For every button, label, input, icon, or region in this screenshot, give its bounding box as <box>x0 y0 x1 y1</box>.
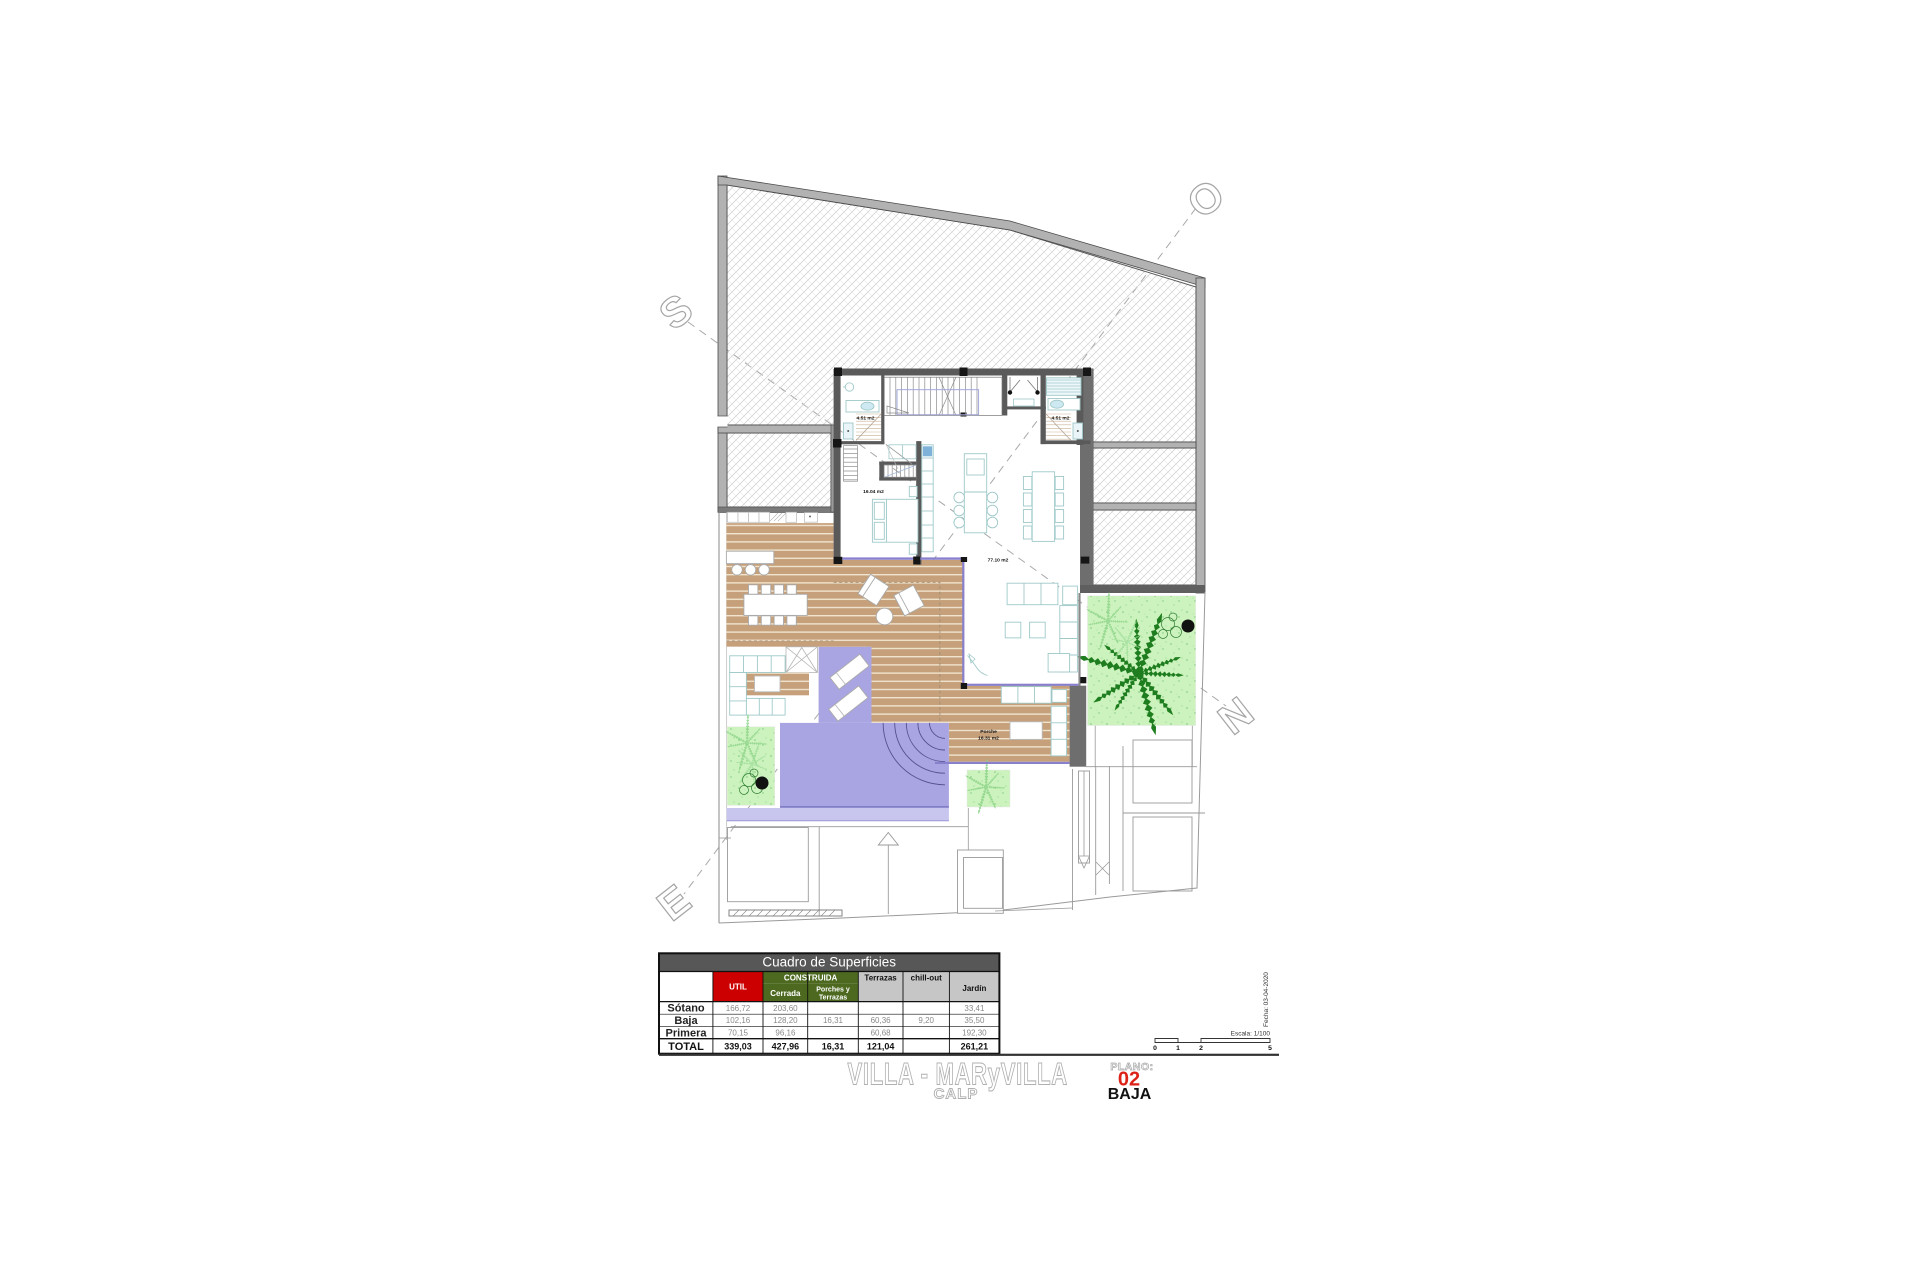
svg-text:chill-out: chill-out <box>911 974 942 983</box>
svg-text:Escala: 1/100: Escala: 1/100 <box>1231 1031 1271 1038</box>
svg-text:261,21: 261,21 <box>961 1042 989 1052</box>
svg-text:4.51 m2: 4.51 m2 <box>1052 416 1070 422</box>
svg-text:4.51 m2: 4.51 m2 <box>857 416 875 422</box>
svg-text:Porche: Porche <box>980 729 997 735</box>
svg-text:33,41: 33,41 <box>964 1004 985 1013</box>
svg-text:Fecha: 03-04-2020: Fecha: 03-04-2020 <box>1263 972 1270 1027</box>
svg-text:CALP: CALP <box>934 1086 979 1103</box>
svg-text:Sótano: Sótano <box>667 1003 705 1015</box>
svg-text:0: 0 <box>1153 1045 1157 1052</box>
svg-text:60,68: 60,68 <box>871 1029 892 1038</box>
svg-text:Terrazas: Terrazas <box>864 974 897 983</box>
svg-text:9,20: 9,20 <box>918 1016 934 1025</box>
svg-text:96,16: 96,16 <box>775 1029 796 1038</box>
svg-text:192,30: 192,30 <box>962 1029 987 1038</box>
svg-text:Terrazas: Terrazas <box>819 995 847 1002</box>
svg-text:CONSTRUIDA: CONSTRUIDA <box>784 974 838 983</box>
svg-text:BAJA: BAJA <box>1108 1086 1152 1103</box>
svg-text:70,15: 70,15 <box>728 1029 749 1038</box>
svg-text:2: 2 <box>1199 1045 1203 1052</box>
svg-text:UTIL: UTIL <box>729 983 747 992</box>
svg-text:Porches y: Porches y <box>816 987 850 994</box>
svg-text:16.04 m2: 16.04 m2 <box>863 489 884 495</box>
svg-text:TOTAL: TOTAL <box>668 1041 704 1053</box>
svg-text:Jardín: Jardín <box>962 984 986 993</box>
svg-text:Primera: Primera <box>666 1027 708 1039</box>
svg-text:128,20: 128,20 <box>773 1016 798 1025</box>
svg-text:427,96: 427,96 <box>772 1042 800 1052</box>
svg-text:Cuadro de Superficies: Cuadro de Superficies <box>762 955 896 970</box>
svg-text:339,03: 339,03 <box>724 1042 752 1052</box>
svg-text:203,60: 203,60 <box>773 1004 798 1013</box>
svg-text:16,31: 16,31 <box>823 1016 844 1025</box>
svg-text:16,31: 16,31 <box>822 1042 845 1052</box>
svg-text:102,16: 102,16 <box>726 1016 751 1025</box>
svg-text:Baja: Baja <box>674 1015 698 1027</box>
svg-text:121,04: 121,04 <box>867 1042 895 1052</box>
svg-text:60,36: 60,36 <box>871 1016 892 1025</box>
svg-text:1: 1 <box>1176 1045 1180 1052</box>
svg-text:16.31 m2: 16.31 m2 <box>978 736 999 742</box>
svg-text:5: 5 <box>1268 1045 1272 1052</box>
svg-text:Cerrada: Cerrada <box>770 989 801 998</box>
svg-text:166,72: 166,72 <box>726 1004 751 1013</box>
svg-text:35,50: 35,50 <box>964 1016 985 1025</box>
svg-text:77.10 m2: 77.10 m2 <box>988 558 1009 564</box>
